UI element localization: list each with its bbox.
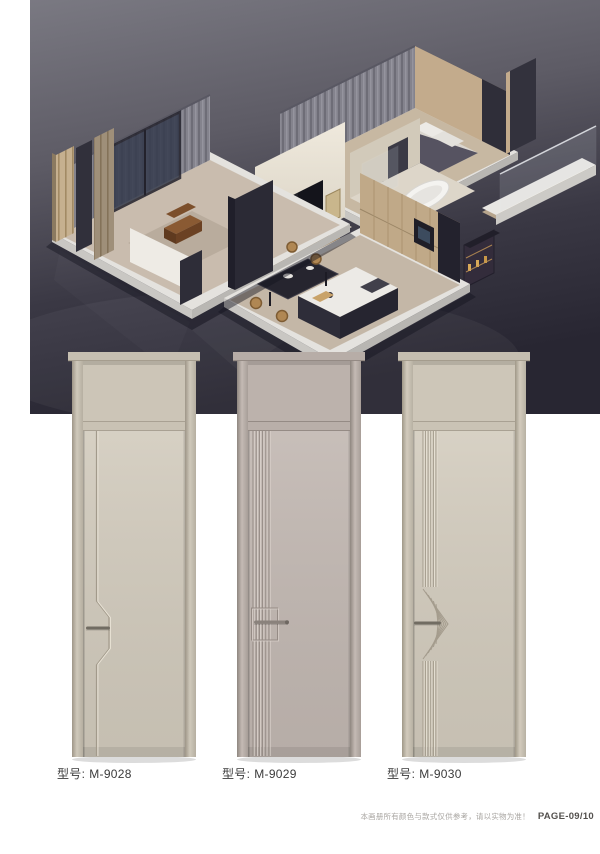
transom-rail <box>413 421 515 431</box>
door-figure-m-9030 <box>396 352 532 764</box>
door-head-cap <box>233 352 365 361</box>
door-figure-m-9028 <box>66 352 202 764</box>
dining-chair <box>251 298 262 309</box>
transom-panel <box>413 361 515 421</box>
dark-panel <box>76 140 92 252</box>
disclaimer-text: 本画册所有颜色与款式仅供参考，请以实物为准！ <box>360 811 529 822</box>
door-jamb-right <box>185 361 196 757</box>
wardrobe-column <box>510 58 536 152</box>
dining-chair <box>277 311 288 322</box>
model-label-m-9030: 型号:M-9030 <box>387 765 537 782</box>
slat-panel <box>56 146 74 242</box>
door-head-cap <box>68 352 200 361</box>
model-number: M-9028 <box>89 767 132 781</box>
dining-chair <box>287 242 297 252</box>
door-handle <box>414 622 441 625</box>
model-label-prefix: 型号: <box>57 767 85 781</box>
model-label-prefix: 型号: <box>222 767 250 781</box>
door-figure-m-9029 <box>231 352 367 764</box>
transom-panel <box>83 361 185 421</box>
door-jamb-right <box>515 361 526 757</box>
door-jamb-left <box>72 361 83 757</box>
model-label-prefix: 型号: <box>387 767 415 781</box>
door-jamb-right <box>350 361 361 757</box>
door-handle <box>86 627 110 630</box>
model-number: M-9030 <box>419 767 462 781</box>
transom-rail <box>83 421 185 431</box>
door-shadow <box>237 756 361 763</box>
door-head-cap <box>398 352 530 361</box>
page-footer: 本画册所有颜色与款式仅供参考，请以实物为准！ PAGE-09/10 <box>360 811 594 822</box>
transom-panel <box>248 361 350 421</box>
door-jamb-left <box>237 361 248 757</box>
page-number: PAGE-09/10 <box>538 811 594 822</box>
transom-rail <box>248 421 350 431</box>
model-number: M-9029 <box>254 767 297 781</box>
model-label-m-9028: 型号:M-9028 <box>57 765 207 782</box>
dark-feature-wall <box>235 180 273 290</box>
door-shadow <box>72 756 196 763</box>
model-label-m-9029: 型号:M-9029 <box>222 765 372 782</box>
door-shadow <box>402 756 526 763</box>
door-jamb-left <box>402 361 413 757</box>
door-handle <box>254 621 288 624</box>
fridge <box>438 212 460 283</box>
